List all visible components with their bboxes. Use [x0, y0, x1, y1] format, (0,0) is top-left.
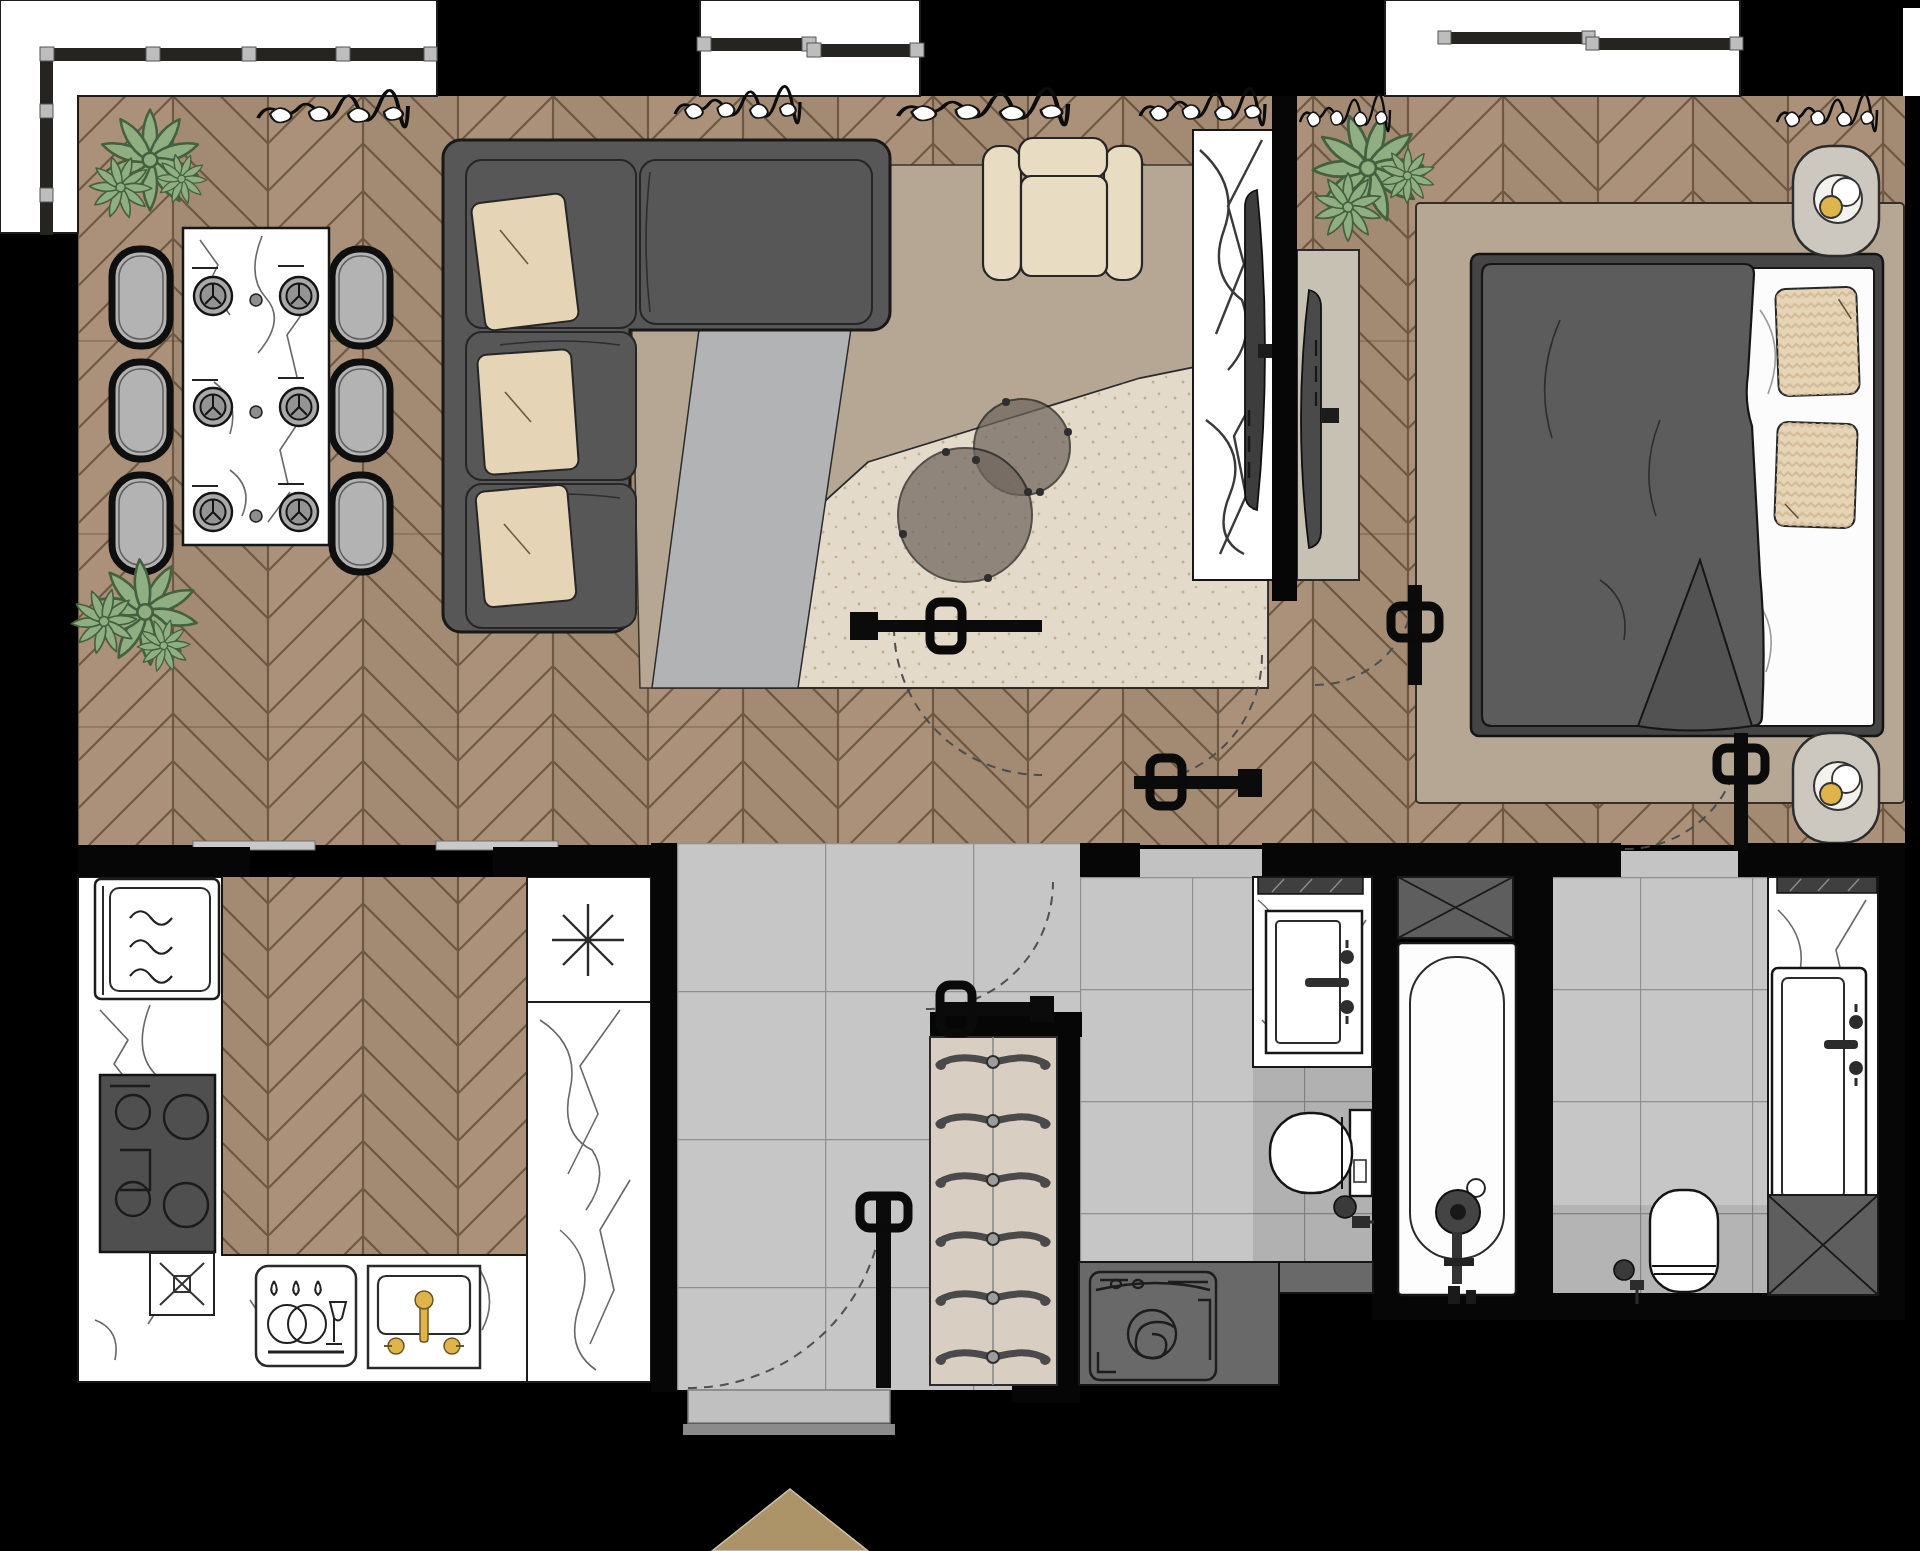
dining-chair	[332, 249, 390, 346]
door-hallway	[937, 1002, 1053, 1016]
tv-bedroom	[1301, 290, 1321, 548]
sink-second	[1772, 968, 1866, 1208]
door-corridor	[862, 620, 1042, 632]
wood-floor-kitchen	[222, 877, 527, 1258]
nightstand-lamp-top	[1793, 146, 1879, 256]
entrance-step	[688, 1390, 890, 1423]
dining-chair	[332, 362, 390, 459]
kitchen-tall-counter	[527, 1002, 651, 1382]
floor-plan-stage: Apartment floor plan — top view renderin…	[0, 0, 1920, 1551]
dining-chair	[112, 362, 170, 459]
floor-plan: Apartment floor plan — top view renderin…	[0, 0, 1920, 1551]
toilet-main	[1270, 1110, 1372, 1196]
entrance-sill	[683, 1424, 895, 1435]
window-sliver-right	[1903, 8, 1920, 96]
dining-set	[112, 228, 390, 572]
threshold	[1621, 851, 1738, 877]
armchair	[983, 138, 1142, 280]
sofa-pillows	[471, 193, 580, 608]
cooktop	[100, 1075, 215, 1252]
coffee-table-large	[898, 448, 1032, 582]
mirror-second	[1777, 877, 1877, 893]
dining-chair	[112, 475, 170, 572]
toilet-second	[1650, 1190, 1718, 1292]
tv-wall	[1193, 130, 1273, 580]
dining-chair	[112, 249, 170, 346]
nightstand-lamp-bottom	[1793, 733, 1879, 843]
door-entrance	[876, 1192, 891, 1388]
dining-chair	[332, 475, 390, 572]
